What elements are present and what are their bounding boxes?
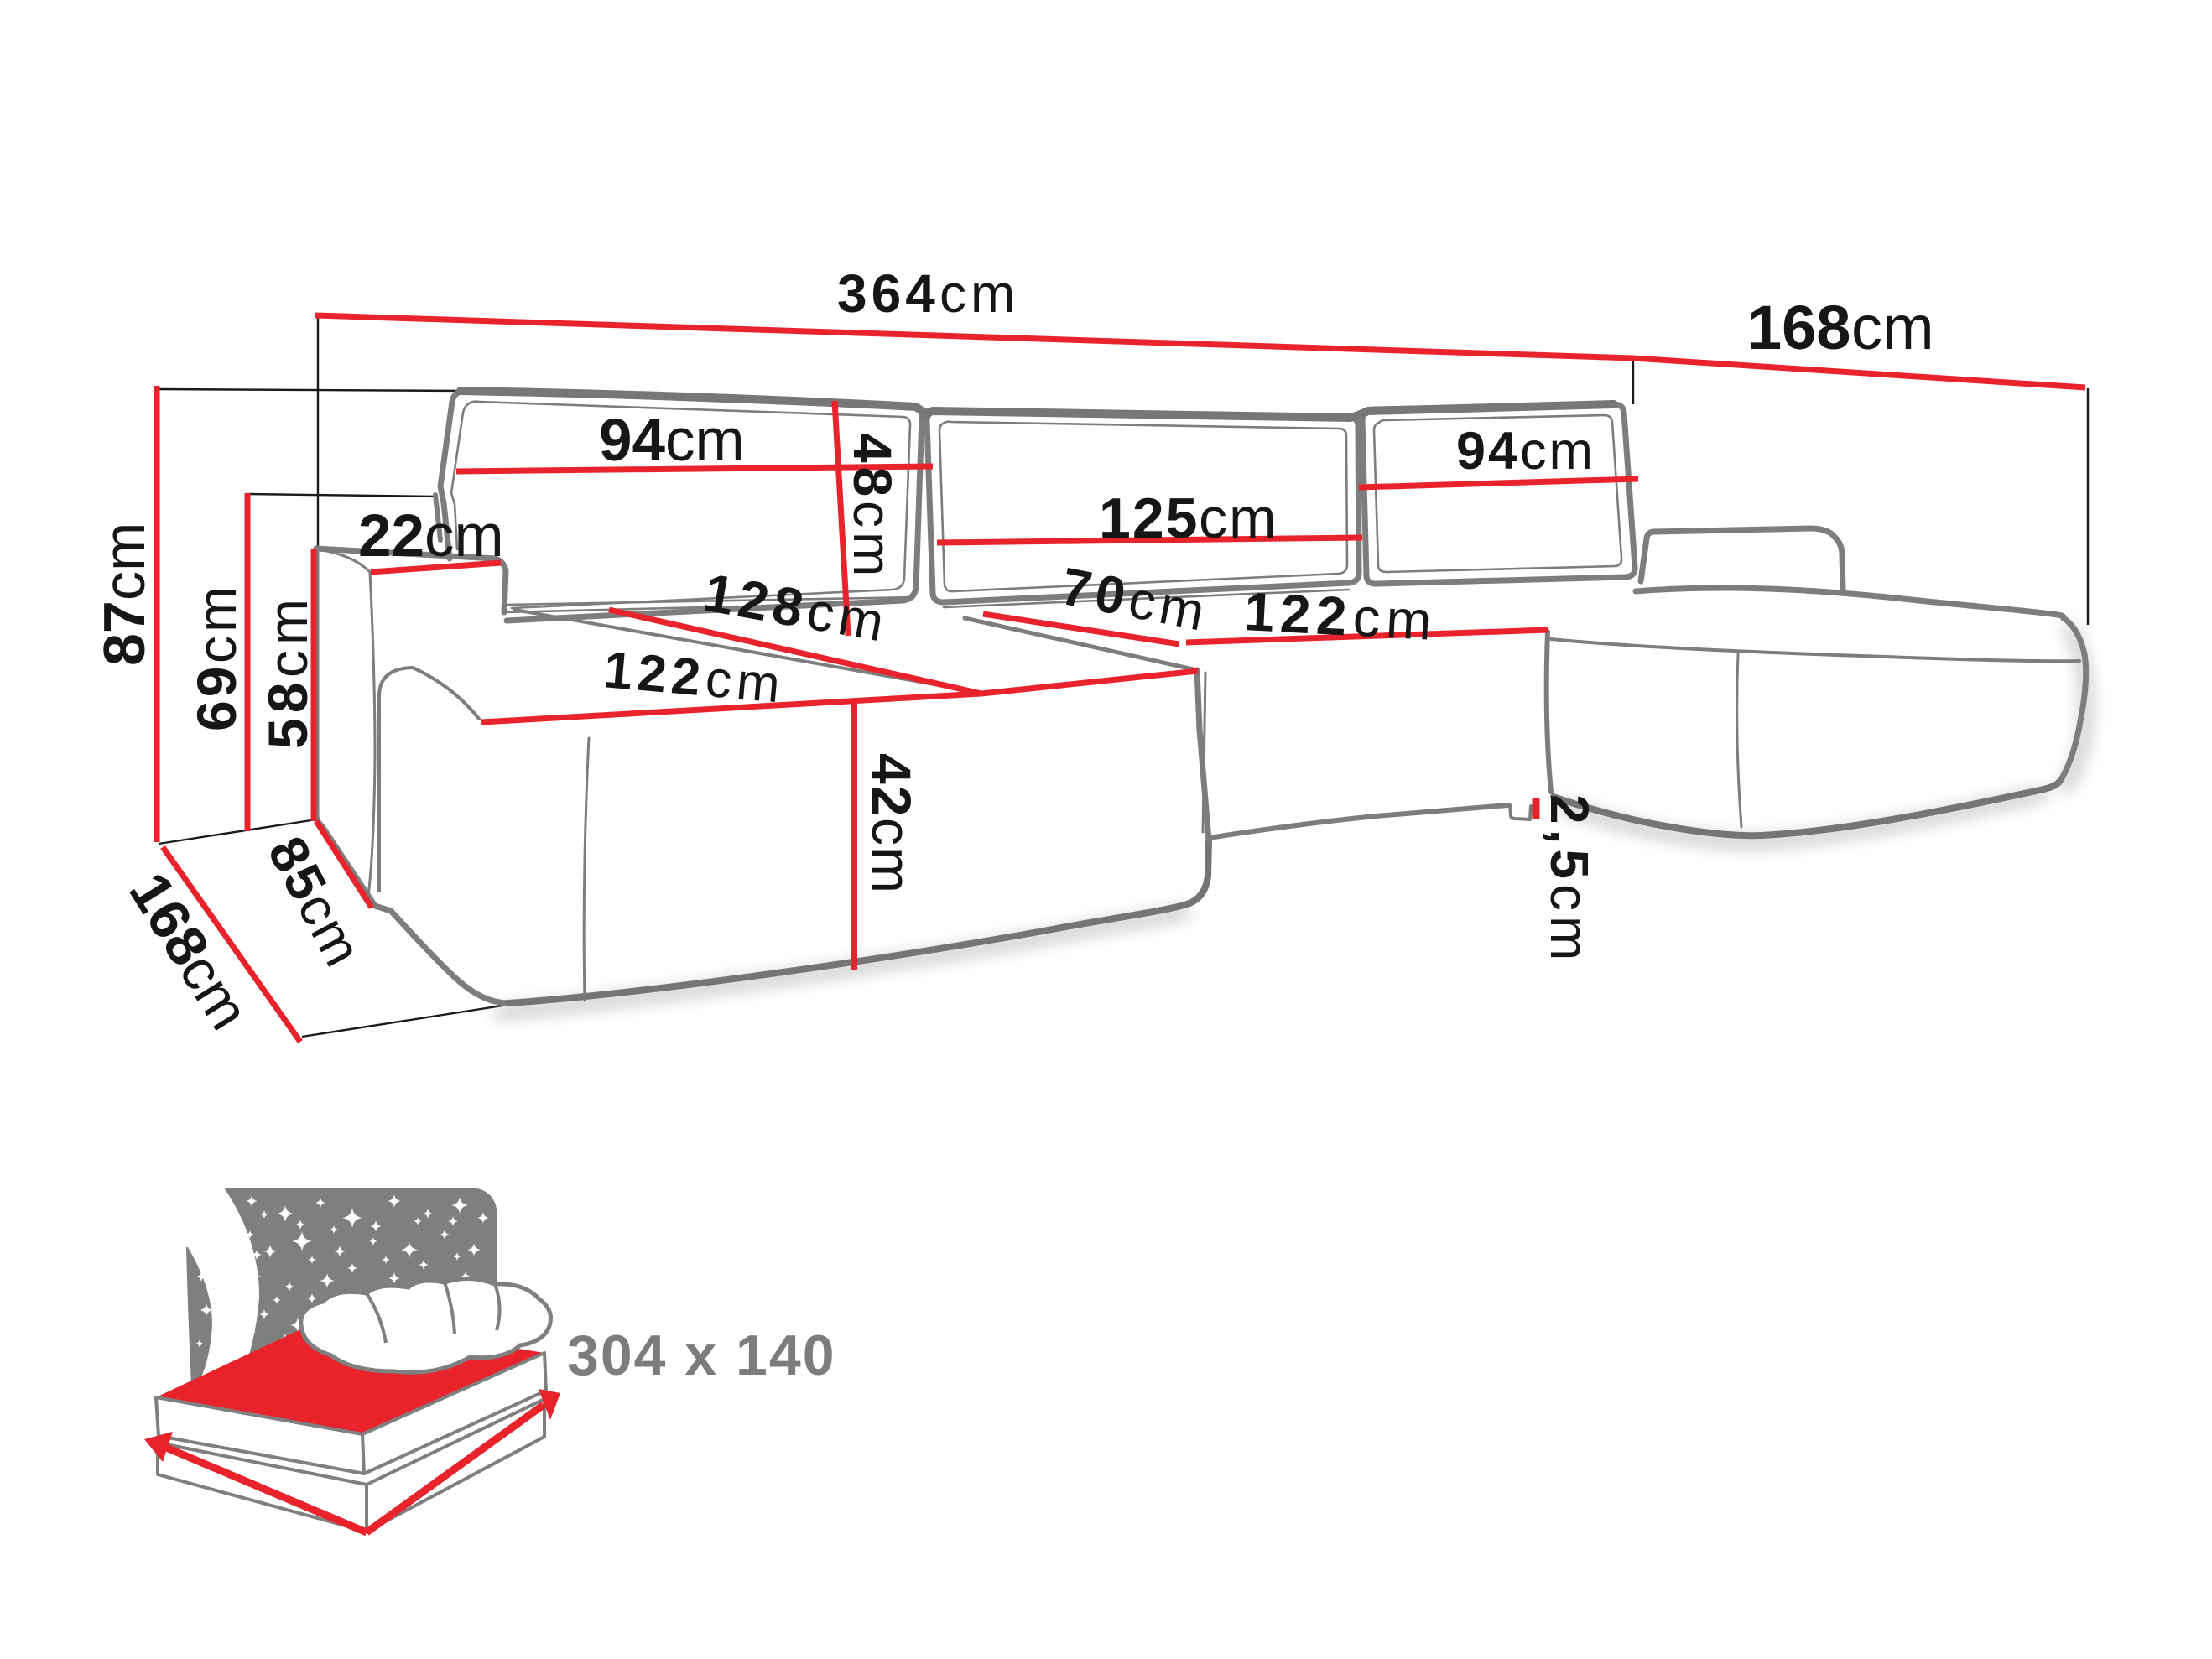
svg-text:69: 69 bbox=[185, 663, 247, 731]
svg-text:122: 122 bbox=[1242, 580, 1354, 647]
svg-text:304 x 140: 304 x 140 bbox=[567, 1324, 836, 1387]
svg-text:168: 168 bbox=[1747, 293, 1850, 362]
svg-text:22: 22 bbox=[358, 503, 424, 569]
svg-text:2,5: 2,5 bbox=[1539, 794, 1600, 884]
svg-text:cm: cm bbox=[1520, 422, 1595, 481]
svg-text:cm: cm bbox=[1199, 486, 1278, 550]
svg-text:364: 364 bbox=[837, 263, 939, 324]
svg-text:48: 48 bbox=[842, 433, 903, 501]
svg-text:cm: cm bbox=[185, 583, 247, 663]
svg-text:125: 125 bbox=[1099, 486, 1199, 550]
svg-text:58: 58 bbox=[257, 678, 319, 749]
svg-text:94: 94 bbox=[1456, 422, 1520, 481]
svg-text:122: 122 bbox=[601, 641, 708, 707]
svg-text:42: 42 bbox=[861, 753, 923, 818]
svg-text:cm: cm bbox=[703, 650, 787, 715]
svg-text:cm: cm bbox=[665, 408, 745, 474]
svg-text:94: 94 bbox=[599, 408, 665, 474]
svg-text:cm: cm bbox=[861, 818, 923, 895]
svg-text:cm: cm bbox=[1351, 586, 1439, 652]
svg-text:cm: cm bbox=[1539, 884, 1600, 965]
svg-text:cm: cm bbox=[1851, 293, 1934, 362]
svg-text:cm: cm bbox=[939, 263, 1019, 324]
svg-text:87: 87 bbox=[91, 601, 157, 666]
svg-text:cm: cm bbox=[424, 503, 504, 569]
svg-text:cm: cm bbox=[91, 523, 157, 601]
svg-text:cm: cm bbox=[257, 594, 319, 678]
svg-text:cm: cm bbox=[842, 501, 903, 580]
